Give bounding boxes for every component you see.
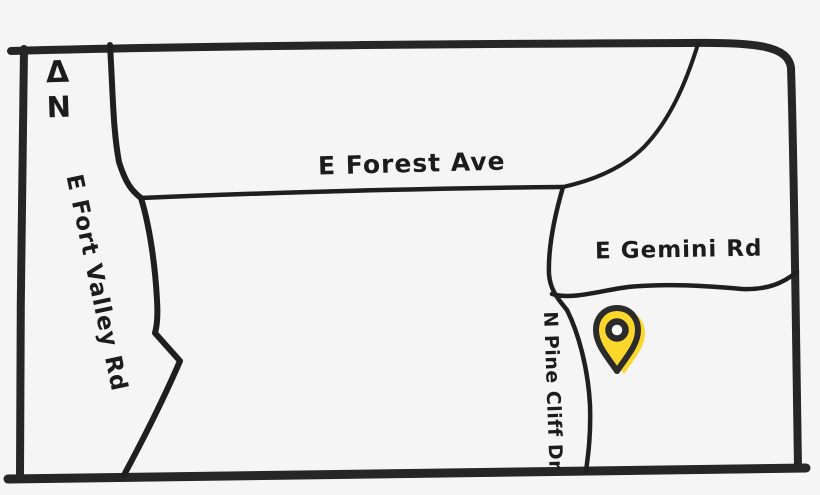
road-forest-ave	[141, 187, 562, 198]
road-gemini	[552, 272, 797, 296]
road-label-gemini: E Gemini Rd	[595, 236, 763, 265]
north-letter: N	[46, 93, 71, 123]
road-fort-valley	[110, 45, 180, 475]
north-arrow-icon: Δ	[45, 58, 70, 89]
hand-drawn-map: Δ N E Fort Valley Rd E Forest Ave E Gemi…	[0, 0, 820, 495]
pin-center-dot	[609, 322, 626, 339]
border-left	[20, 49, 24, 476]
road-top-curve	[563, 44, 698, 187]
location-pin[interactable]	[596, 308, 645, 374]
road-label-forest-ave: E Forest Ave	[318, 147, 506, 181]
north-indicator: Δ N	[45, 58, 72, 123]
